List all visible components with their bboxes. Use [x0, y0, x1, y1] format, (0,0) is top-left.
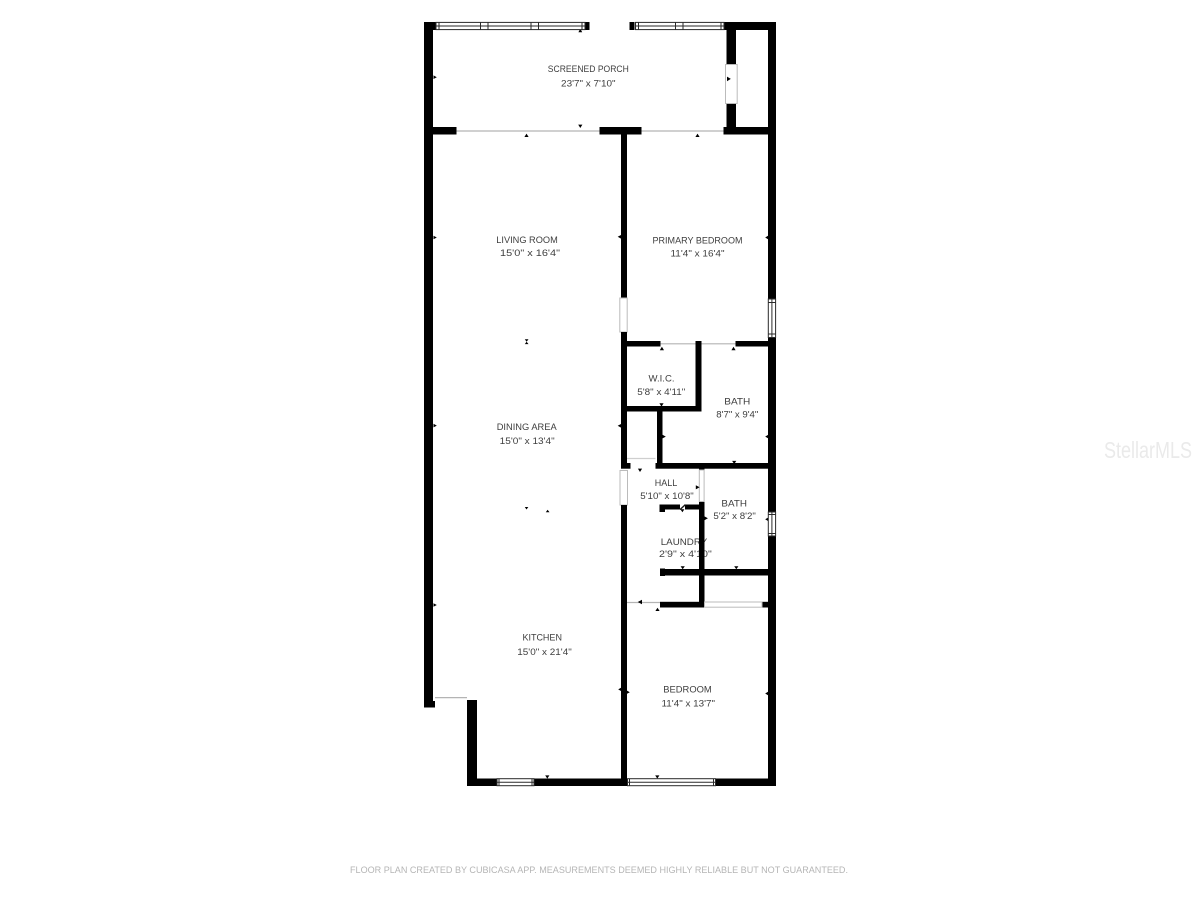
svg-text:DINING AREA: DINING AREA — [497, 422, 558, 433]
svg-text:15'0" x 21'4": 15'0" x 21'4" — [517, 647, 572, 658]
svg-text:23'7" x 7'10": 23'7" x 7'10" — [561, 79, 616, 90]
svg-text:HALL: HALL — [655, 478, 678, 489]
svg-text:LIVING ROOM: LIVING ROOM — [496, 235, 558, 246]
svg-text:StellarMLS: StellarMLS — [1104, 437, 1192, 463]
svg-text:KITCHEN: KITCHEN — [522, 633, 562, 644]
svg-text:8'7" x 9'4": 8'7" x 9'4" — [716, 409, 758, 420]
svg-text:W.I.C.: W.I.C. — [649, 373, 675, 384]
svg-text:15'0" x 13'4": 15'0" x 13'4" — [500, 436, 555, 447]
svg-text:5'2" x 8'2": 5'2" x 8'2" — [713, 511, 756, 522]
svg-text:SCREENED PORCH: SCREENED PORCH — [548, 64, 629, 75]
svg-text:PRIMARY BEDROOM: PRIMARY BEDROOM — [653, 236, 743, 247]
svg-text:BATH: BATH — [721, 498, 747, 509]
svg-text:FLOOR PLAN CREATED BY CUBICASA: FLOOR PLAN CREATED BY CUBICASA APP. MEAS… — [350, 865, 848, 876]
svg-text:5'8" x 4'11": 5'8" x 4'11" — [637, 387, 685, 398]
svg-text:BEDROOM: BEDROOM — [663, 684, 712, 695]
svg-text:BATH: BATH — [724, 396, 750, 407]
svg-text:15'0" x 16'4": 15'0" x 16'4" — [500, 248, 560, 259]
svg-text:11'4" x 13'7": 11'4" x 13'7" — [662, 698, 716, 709]
svg-text:11'4" x 16'4": 11'4" x 16'4" — [671, 249, 725, 260]
svg-text:5'10" x 10'8": 5'10" x 10'8" — [640, 491, 694, 502]
